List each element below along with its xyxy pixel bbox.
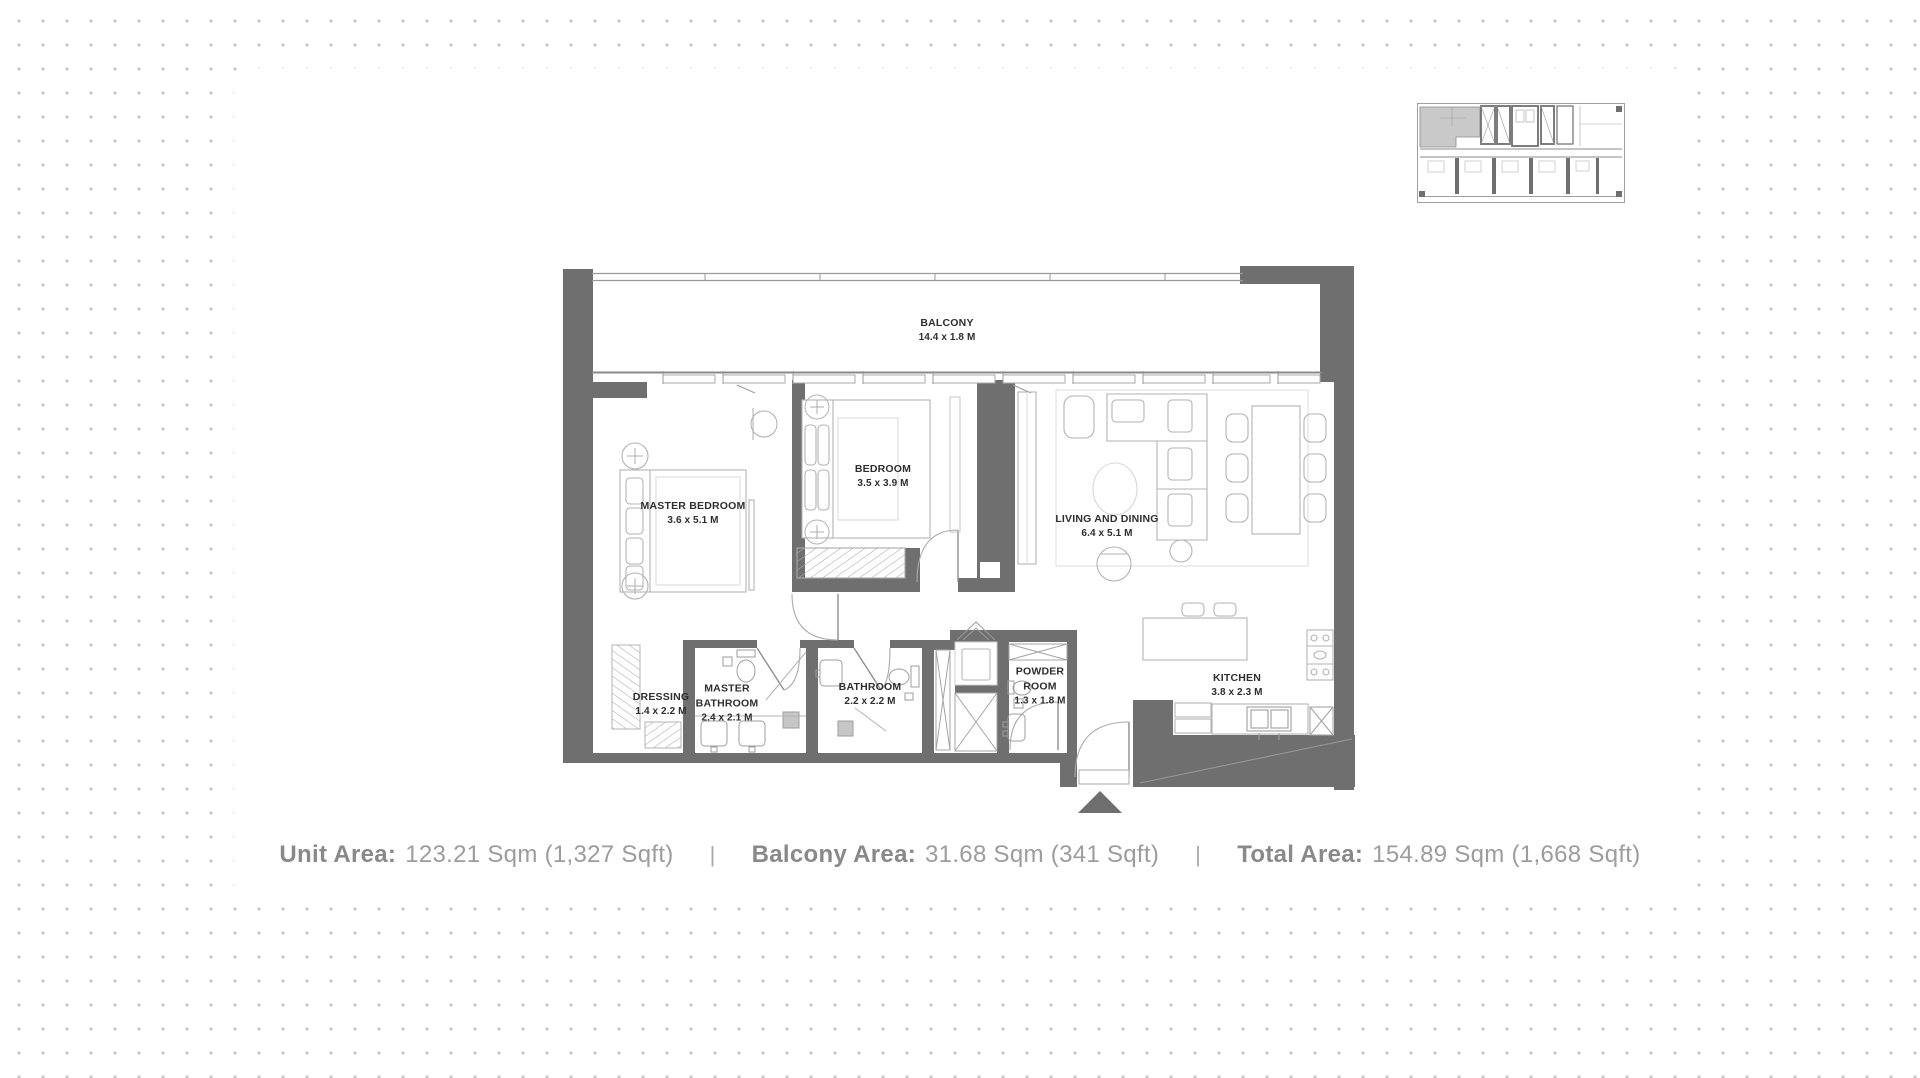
washer — [962, 649, 990, 680]
kitchen-island — [1143, 618, 1247, 660]
total-area-stat: Total Area:154.89 Sqm (1,668 Sqft) — [1237, 841, 1640, 869]
room-label-living-dining: LIVING AND DINING 6.4 x 5.1 M — [1055, 512, 1158, 542]
room-label-powder-room: POWDER ROOM 1.3 x 1.8 M — [1008, 665, 1072, 710]
room-label-bedroom: BEDROOM 3.5 x 3.9 M — [855, 462, 911, 492]
entrance-arrow-icon — [1078, 791, 1122, 813]
unit-area-stat: Unit Area:123.21 Sqm (1,327 Sqft) — [279, 841, 673, 869]
floor-plan-drawing — [0, 0, 1920, 1078]
room-label-bathroom: BATHROOM 2.2 x 2.2 M — [839, 680, 902, 710]
separator: | — [710, 842, 716, 868]
key-plan — [1418, 104, 1625, 203]
floor-plan — [563, 266, 1355, 813]
balcony-parapet — [592, 273, 1243, 281]
room-label-balcony: BALCONY 14.4 x 1.8 M — [919, 316, 976, 346]
room-label-master-bathroom: MASTER BATHROOM 2.4 x 2.1 M — [681, 682, 773, 727]
area-summary: Unit Area:123.21 Sqm (1,327 Sqft) | Balc… — [0, 841, 1920, 869]
dining-table — [1252, 406, 1300, 534]
furniture-living-dining — [1018, 390, 1326, 581]
room-label-kitchen: KITCHEN 3.8 x 2.3 M — [1211, 671, 1262, 701]
balcony-area-stat: Balcony Area:31.68 Sqm (341 Sqft) — [752, 841, 1160, 869]
room-label-master-bedroom: MASTER BEDROOM 3.6 x 5.1 M — [641, 499, 746, 529]
page-background: { "plan": { "wall_color": "#6f6f6f", "ro… — [0, 0, 1920, 1078]
separator: | — [1195, 842, 1201, 868]
wardrobe — [797, 548, 905, 578]
